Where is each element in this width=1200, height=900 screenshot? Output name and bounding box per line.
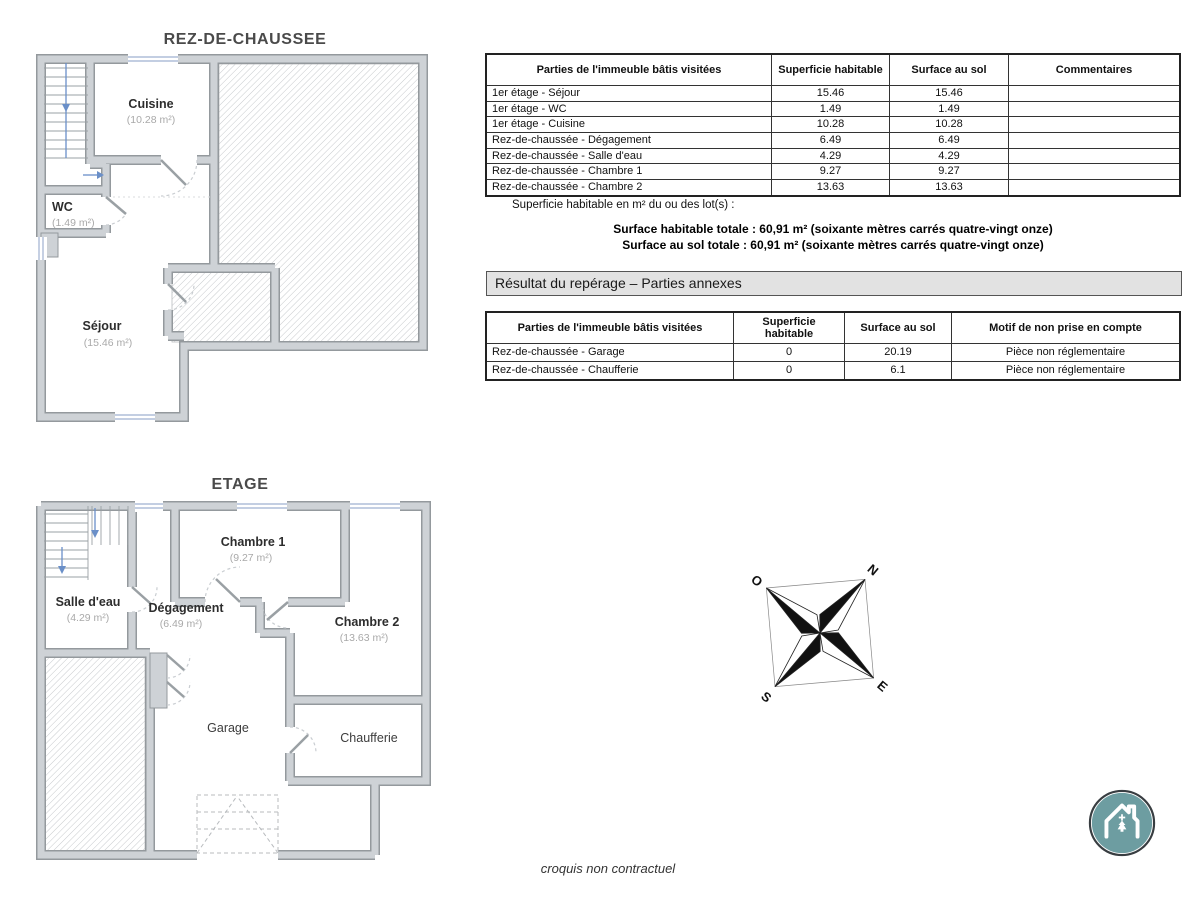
room-label-sejour: Séjour [83, 319, 122, 333]
visited-parts-table: Parties de l'immeuble bâtis visitéesSupe… [485, 53, 1181, 197]
table-row: 1er étage - WC1.491.49 [486, 101, 1180, 117]
table-cell: 0 [734, 362, 845, 381]
table-cell: 9.27 [890, 164, 1009, 180]
compass-east-label: E [874, 678, 891, 695]
room-area-sejour: (15.46 m²) [84, 337, 132, 349]
ground-plan-title: REZ-DE-CHAUSSEE [100, 31, 390, 49]
table-cell: 20.19 [845, 344, 952, 362]
room-area-degagement: (6.49 m²) [160, 618, 203, 630]
room-label-chambre2: Chambre 2 [335, 615, 400, 629]
table-cell: Rez-de-chaussée - Chambre 2 [486, 180, 772, 196]
table-cell [1009, 117, 1181, 133]
room-area-chambre1: (9.27 m²) [230, 552, 273, 564]
compass-west-label: O [748, 572, 765, 590]
table-cell: Rez-de-chaussée - Salle d'eau [486, 148, 772, 164]
table-cell [1009, 148, 1181, 164]
garage-entrance [197, 795, 278, 853]
compass-north-label: N [865, 561, 882, 579]
table-row: Rez-de-chaussée - Chambre 19.279.27 [486, 164, 1180, 180]
column-header: Motif de non prise en compte [952, 312, 1181, 344]
room-label-chaufferie: Chaufferie [340, 731, 397, 745]
table-row: Rez-de-chaussée - Salle d'eau4.294.29 [486, 148, 1180, 164]
room-label-chambre1: Chambre 1 [221, 535, 286, 549]
total-sol: Surface au sol totale : 60,91 m² (soixan… [485, 238, 1181, 254]
column-header: Commentaires [1009, 54, 1181, 86]
table-cell: Rez-de-chaussée - Garage [486, 344, 734, 362]
annex-parts-table: Parties de l'immeuble bâtis visitéesSupe… [485, 311, 1181, 381]
table-row: Rez-de-chaussée - Dégagement6.496.49 [486, 133, 1180, 149]
table-cell [1009, 180, 1181, 196]
table-cell: Pièce non réglementaire [952, 344, 1181, 362]
room-label-garage: Garage [207, 721, 249, 735]
table-cell: 6.49 [890, 133, 1009, 149]
room-area-wc: (1.49 m²) [52, 217, 95, 229]
table-header-row: Parties de l'immeuble bâtis visitéesSupe… [486, 54, 1180, 86]
column-header: Surface au sol [845, 312, 952, 344]
table-cell: 1er étage - Séjour [486, 86, 772, 102]
table-cell: 0 [734, 344, 845, 362]
table-cell [1009, 86, 1181, 102]
document-page: { "plans": { "ground": { "title": "REZ-D… [0, 0, 1200, 900]
table-row: Rez-de-chaussée - Garage020.19Pièce non … [486, 344, 1180, 362]
table-cell: Rez-de-chaussée - Chambre 1 [486, 164, 772, 180]
column-header: Superficie habitable [734, 312, 845, 344]
table-cell [1009, 164, 1181, 180]
room-label-cuisine: Cuisine [128, 97, 173, 111]
room-label-degagement: Dégagement [148, 601, 224, 615]
column-header: Superficie habitable [772, 54, 890, 86]
table-cell: 10.28 [890, 117, 1009, 133]
upper-floor-plan: Chambre 1 (9.27 m²) Salle d'eau (4.29 m²… [25, 493, 447, 867]
table-row: Rez-de-chaussée - Chaufferie06.1Pièce no… [486, 362, 1180, 381]
table-cell: 4.29 [890, 148, 1009, 164]
column-header: Surface au sol [890, 54, 1009, 86]
room-area-chambre2: (13.63 m²) [340, 632, 388, 644]
table-cell [1009, 101, 1181, 117]
room-label-wc: WC [52, 200, 73, 214]
compass-rose: N E S O [735, 545, 910, 723]
table-cell: 13.63 [772, 180, 890, 196]
surface-note: Superficie habitable en m² du ou des lot… [512, 199, 734, 211]
company-logo [1087, 788, 1157, 858]
table-cell: 9.27 [772, 164, 890, 180]
table-cell: Pièce non réglementaire [952, 362, 1181, 381]
ground-floor-plan: Cuisine (10.28 m²) WC (1.49 m²) Séjour (… [28, 50, 450, 432]
column-header: Parties de l'immeuble bâtis visitées [486, 312, 734, 344]
upper-plan-title: ETAGE [100, 476, 380, 494]
table-cell: 1er étage - WC [486, 101, 772, 117]
table-cell: 10.28 [772, 117, 890, 133]
table-cell: 1.49 [772, 101, 890, 117]
table-row: 1er étage - Séjour15.4615.46 [486, 86, 1180, 102]
total-habitable: Surface habitable totale : 60,91 m² (soi… [485, 222, 1181, 238]
table-cell: 6.1 [845, 362, 952, 381]
table-cell: Rez-de-chaussée - Dégagement [486, 133, 772, 149]
table-cell: 1.49 [890, 101, 1009, 117]
table-cell: 15.46 [772, 86, 890, 102]
table-header-row: Parties de l'immeuble bâtis visitéesSupe… [486, 312, 1180, 344]
table-cell: 1er étage - Cuisine [486, 117, 772, 133]
table-cell: 13.63 [890, 180, 1009, 196]
table-row: 1er étage - Cuisine10.2810.28 [486, 117, 1180, 133]
staircase [44, 506, 128, 580]
table-cell: 6.49 [772, 133, 890, 149]
compass-south-label: S [758, 688, 775, 705]
table-cell: 4.29 [772, 148, 890, 164]
table-cell: 15.46 [890, 86, 1009, 102]
hatched-area-floor [45, 657, 145, 851]
column-header: Parties de l'immeuble bâtis visitées [486, 54, 772, 86]
table-row: Rez-de-chaussée - Chambre 213.6313.63 [486, 180, 1180, 196]
footer-disclaimer: croquis non contractuel [458, 861, 758, 876]
room-label-salle-eau: Salle d'eau [56, 595, 121, 609]
annex-section-header: Résultat du repérage – Parties annexes [486, 271, 1182, 296]
totals-block: Surface habitable totale : 60,91 m² (soi… [485, 222, 1181, 253]
room-area-cuisine: (10.28 m²) [127, 114, 175, 126]
table-cell [1009, 133, 1181, 149]
table-cell: Rez-de-chaussée - Chaufferie [486, 362, 734, 381]
room-area-salle-eau: (4.29 m²) [67, 612, 110, 624]
